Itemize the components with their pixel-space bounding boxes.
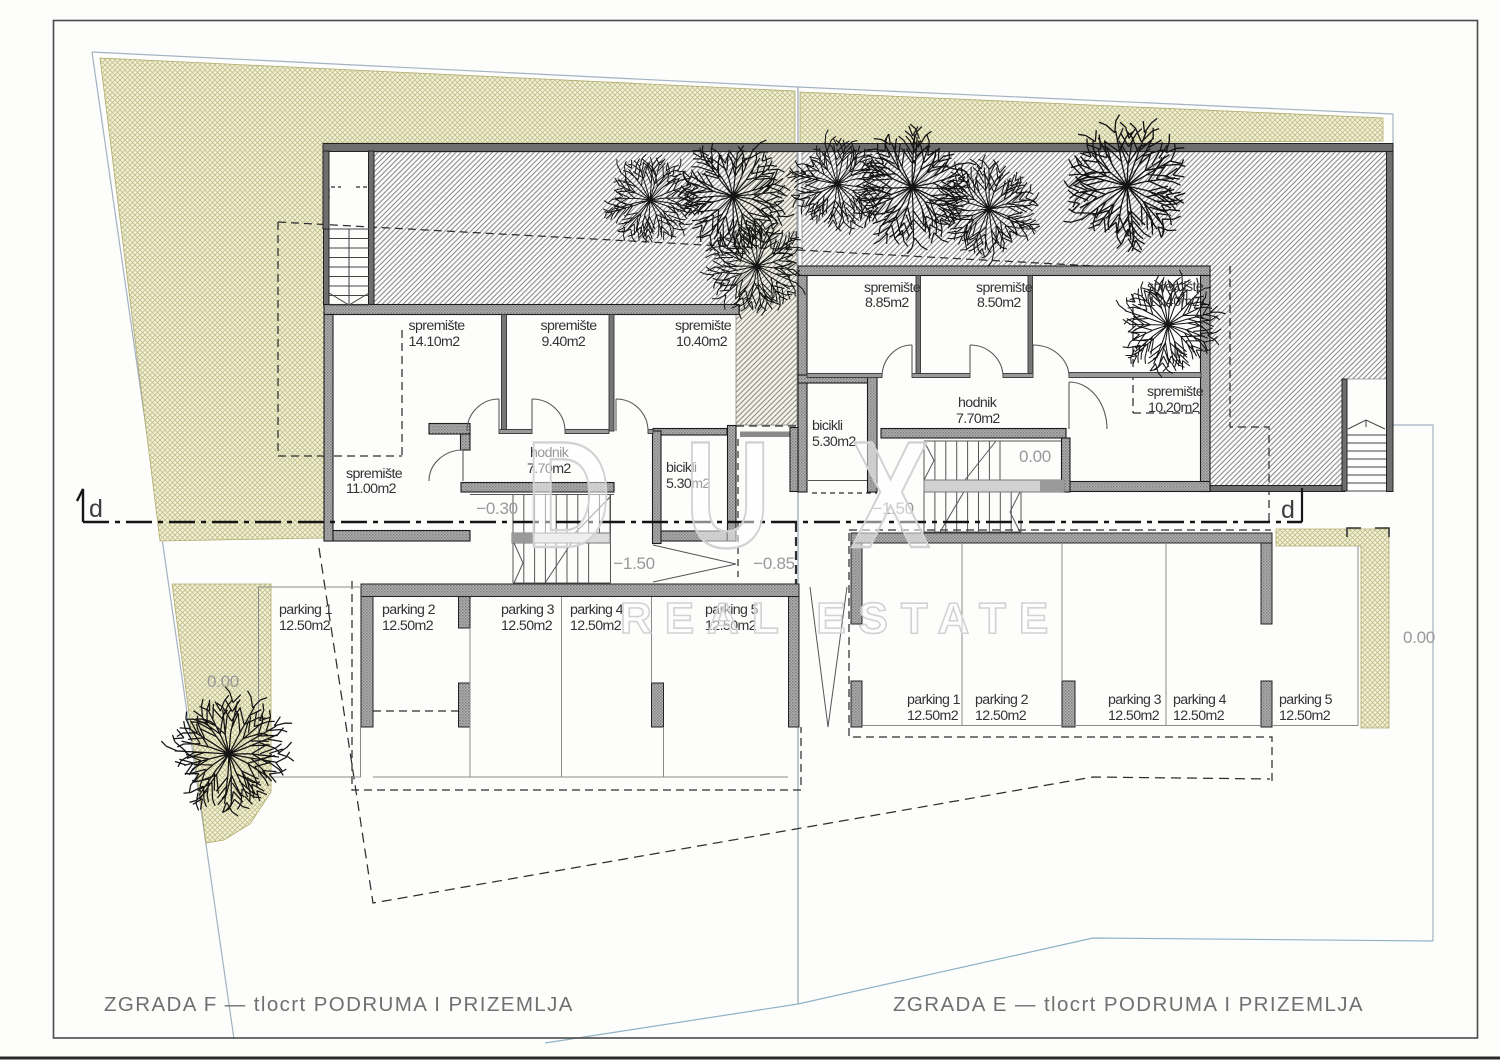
svg-text:parking 4: parking 4 <box>570 602 624 618</box>
svg-text:7.70m2: 7.70m2 <box>956 411 1000 427</box>
svg-text:ZGRADA F — tlocrt PODRUMA I PR: ZGRADA F — tlocrt PODRUMA I PRIZEMLJA <box>104 993 574 1016</box>
svg-text:spremište: spremište <box>409 318 466 334</box>
svg-text:hodnik: hodnik <box>958 395 998 411</box>
svg-text:13.40m2: 13.40m2 <box>1148 294 1200 310</box>
svg-text:10.20m2: 10.20m2 <box>1148 400 1200 416</box>
svg-text:spremište: spremište <box>541 318 598 334</box>
svg-text:−1.50: −1.50 <box>613 554 655 573</box>
svg-text:D: D <box>526 410 612 579</box>
svg-text:12.50m2: 12.50m2 <box>975 708 1027 724</box>
svg-text:parking 3: parking 3 <box>501 602 555 618</box>
svg-text:10.40m2: 10.40m2 <box>676 334 728 350</box>
svg-text:parking 1: parking 1 <box>907 692 961 708</box>
svg-text:d: d <box>89 495 103 523</box>
svg-text:U: U <box>685 410 771 579</box>
svg-text:parking 2: parking 2 <box>382 602 436 618</box>
svg-text:8.85m2: 8.85m2 <box>865 295 909 311</box>
svg-text:9.40m2: 9.40m2 <box>542 334 586 350</box>
svg-text:spremište: spremište <box>976 280 1033 296</box>
svg-text:parking 2: parking 2 <box>975 692 1029 708</box>
svg-text:12.50m2: 12.50m2 <box>279 618 331 634</box>
svg-text:12.50m2: 12.50m2 <box>570 618 622 634</box>
svg-text:5.30m2: 5.30m2 <box>812 434 856 450</box>
svg-text:14.10m2: 14.10m2 <box>409 334 461 350</box>
svg-text:X: X <box>851 410 930 579</box>
svg-text:12.50m2: 12.50m2 <box>1173 708 1225 724</box>
svg-text:12.50m2: 12.50m2 <box>382 618 434 634</box>
svg-text:spremište: spremište <box>1147 384 1204 400</box>
svg-text:REAL ESTATE: REAL ESTATE <box>620 594 1061 643</box>
svg-text:spremište: spremište <box>1147 279 1204 295</box>
svg-text:spremište: spremište <box>675 318 732 334</box>
svg-text:12.50m2: 12.50m2 <box>1279 708 1331 724</box>
svg-text:12.50m2: 12.50m2 <box>501 618 553 634</box>
svg-text:−0.30: −0.30 <box>476 499 518 518</box>
svg-text:8.50m2: 8.50m2 <box>977 295 1021 311</box>
svg-text:parking 3: parking 3 <box>1108 692 1162 708</box>
svg-text:0.00: 0.00 <box>1019 447 1051 466</box>
svg-text:spremište: spremište <box>864 280 921 296</box>
svg-text:parking 1: parking 1 <box>279 602 333 618</box>
svg-text:12.50m2: 12.50m2 <box>907 708 959 724</box>
svg-text:parking 5: parking 5 <box>1279 692 1333 708</box>
svg-text:d: d <box>1281 496 1295 524</box>
svg-text:0.00: 0.00 <box>207 672 239 691</box>
svg-text:12.50m2: 12.50m2 <box>1108 708 1160 724</box>
svg-text:spremište: spremište <box>346 466 403 482</box>
svg-text:ZGRADA E — tlocrt PODRUMA I PR: ZGRADA E — tlocrt PODRUMA I PRIZEMLJA <box>893 993 1364 1016</box>
svg-text:parking 4: parking 4 <box>1173 692 1227 708</box>
svg-text:0.00: 0.00 <box>1403 628 1435 647</box>
svg-text:bicikli: bicikli <box>812 418 843 434</box>
svg-text:11.00m2: 11.00m2 <box>346 481 397 497</box>
